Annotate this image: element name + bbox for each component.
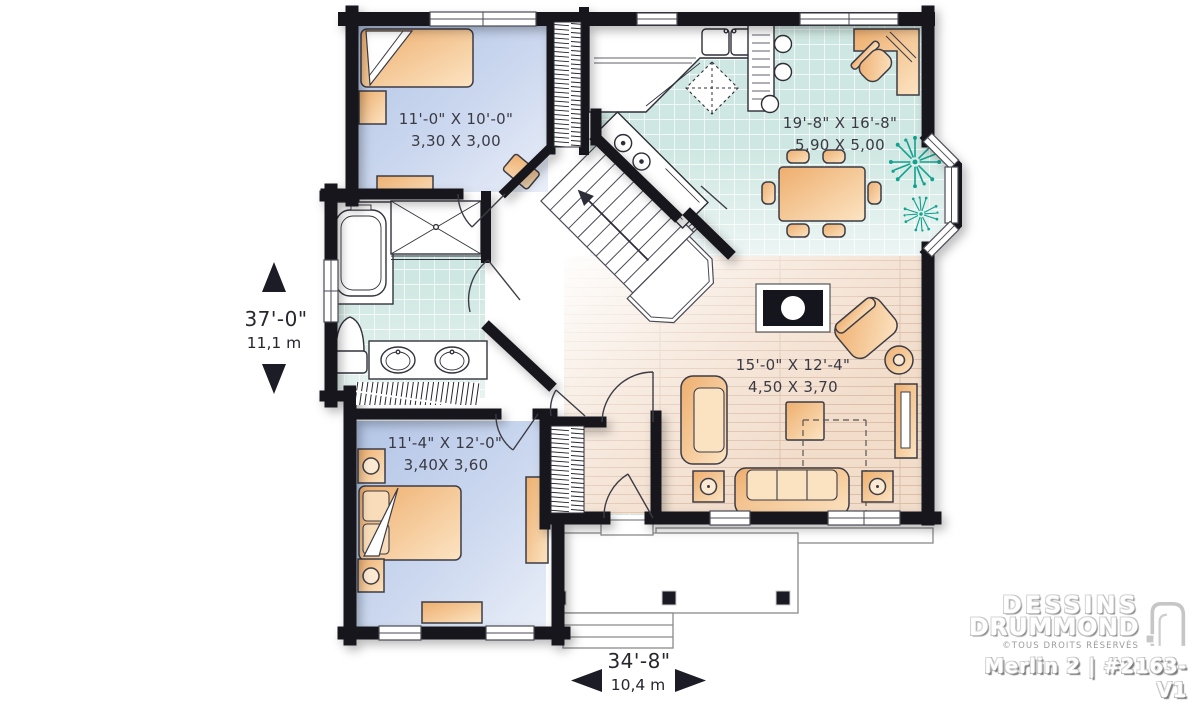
dimension-width: 34'-8" 10,4 m [571, 649, 706, 694]
porch-post [776, 591, 790, 605]
floorplan-page: 37'-0" 11,1 m 34'-8" 10,4 m 11'-0" X 10'… [0, 0, 1200, 711]
label-bedroom1-metric: 3,30 X 3,00 [411, 132, 501, 150]
dining-chair [762, 182, 775, 204]
sofa [735, 468, 849, 515]
window-bathroom-left [324, 260, 338, 322]
window-bedroom1-top [430, 12, 536, 26]
label-kitchen-metric: 5,90 X 5,00 [795, 136, 885, 154]
brand-block: DESSINS DRUMMOND ©TOUS DROITS RÉSERVÉS M… [972, 595, 1187, 702]
tv-unit [756, 284, 830, 332]
nightstand [359, 91, 386, 124]
dresser [422, 602, 482, 623]
width-metric: 10,4 m [611, 676, 666, 694]
window-kitchen-top [637, 13, 677, 25]
brand-rights: ©TOUS DROITS RÉSERVÉS [969, 641, 1139, 651]
vanity [369, 341, 487, 379]
dining-chair [868, 182, 881, 204]
plan-model-label: Merlin 2 | #2163-V1 [972, 654, 1187, 702]
bar-stool [775, 36, 792, 53]
label-bedroom2-metric: 3,40X 3,60 [404, 456, 489, 474]
label-bedroom2-imperial: 11'-4" X 12'-0" [388, 434, 502, 452]
dining-chair [787, 224, 809, 237]
dining-chair [823, 224, 845, 237]
window-bedroom2-bottom [486, 626, 534, 640]
window-living-bottom [710, 511, 750, 525]
closet-entry [551, 426, 584, 513]
arrow-right-icon [675, 669, 706, 692]
depth-metric: 11,1 m [247, 334, 302, 352]
porch-post [662, 591, 676, 605]
loveseat [681, 376, 727, 464]
porch [552, 520, 933, 648]
depth-imperial: 37'-0" [244, 307, 307, 331]
bar-stool [775, 64, 792, 81]
width-imperial: 34'-8" [607, 649, 670, 673]
closet-bedroom1 [554, 22, 581, 147]
arrow-left-icon [571, 669, 602, 692]
brand-names: DESSINS DRUMMOND ©TOUS DROITS RÉSERVÉS [969, 595, 1139, 651]
window-bay-center [945, 167, 958, 223]
window-living-bottom [828, 511, 900, 525]
brand-name-line2: DRUMMOND [969, 616, 1139, 639]
shower [391, 201, 481, 260]
arrow-up-icon [262, 262, 286, 292]
porch-floor [560, 533, 798, 613]
porch-steps [563, 613, 673, 648]
brand-door-icon [1145, 597, 1187, 649]
label-living-imperial: 15'-0" X 12'-4" [736, 356, 850, 374]
label-bedroom1-imperial: 11'-0" X 10'-0" [399, 110, 513, 128]
bar-stool [762, 96, 779, 113]
arrow-down-icon [262, 364, 286, 394]
dimension-depth: 37'-0" 11,1 m [244, 262, 307, 394]
bath-mat [356, 382, 480, 405]
brand-row: DESSINS DRUMMOND ©TOUS DROITS RÉSERVÉS [972, 595, 1187, 651]
label-living-metric: 4,50 X 3,70 [748, 378, 838, 396]
window-dining-top [800, 13, 898, 25]
label-kitchen-imperial: 19'-8" X 16'-8" [783, 114, 897, 132]
coffee-table [786, 402, 824, 440]
dining-table [779, 167, 865, 221]
window-bedroom2-bottom [379, 626, 421, 640]
